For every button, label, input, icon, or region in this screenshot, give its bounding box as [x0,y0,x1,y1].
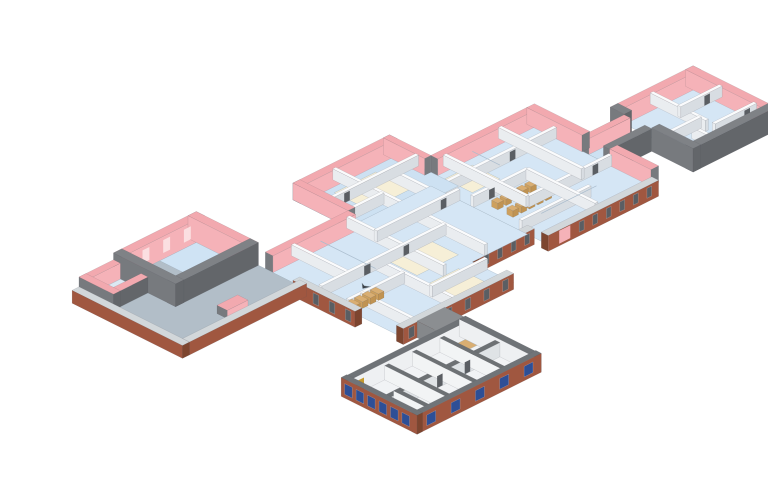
isometric-building-model [40,16,768,480]
hall-wing [72,212,307,359]
annex-building [341,316,541,434]
floorplan-3d-view: 3D isometric cutaway view of single-stor… [40,16,768,480]
